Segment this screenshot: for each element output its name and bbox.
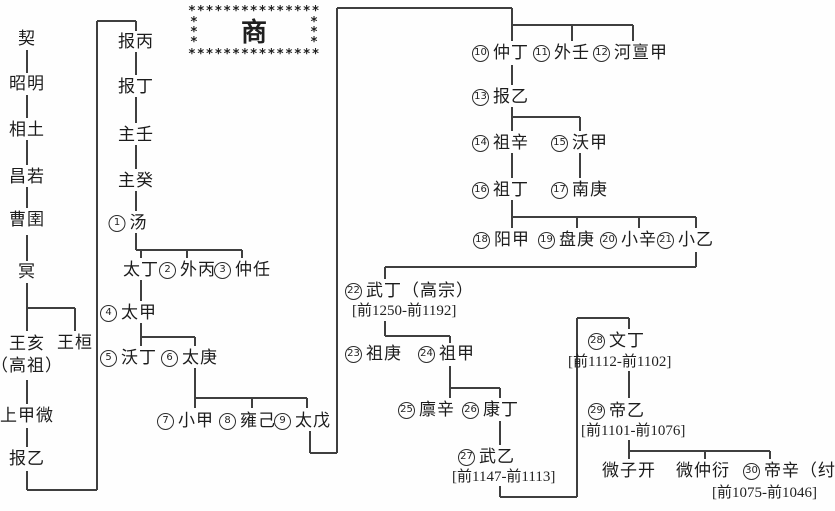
king-14-number-circle: 14 [472, 135, 489, 152]
king-16-number-circle: 16 [472, 182, 489, 199]
king-27-dates: [前1147-前1113] [452, 469, 555, 485]
king-13-number-circle: 13 [472, 89, 489, 106]
title-frame-bottom: *************** [188, 49, 320, 60]
king-15-wojia: 15沃甲 [551, 133, 608, 153]
king-8-number-circle: 8 [219, 413, 236, 430]
king-17-nangeng: 17南庚 [551, 180, 608, 200]
king-21-xiaoyi: 21小乙 [657, 230, 714, 250]
king-20-number-circle: 20 [600, 232, 617, 249]
ancestor-ming: 冥 [18, 262, 36, 282]
king-29-dates: [前1101-前1076] [581, 423, 685, 439]
king-10-number-circle: 10 [472, 45, 489, 62]
ancestor-baoyi: 报乙 [9, 449, 45, 469]
king-19-number-circle: 19 [538, 232, 555, 249]
king-7-xiaojia: 7小甲 [157, 411, 214, 431]
king-18-yangjia: 18阳甲 [473, 230, 530, 250]
king-30-number-circle: 30 [743, 463, 760, 480]
king-3-zhongren: 3仲任 [214, 260, 271, 280]
shang-genealogy-diagram: *************** * * * 商 * * * **********… [0, 0, 835, 511]
dynasty-title-box: *************** * * * 商 * * * **********… [188, 6, 320, 60]
king-12-hedanjia: 12河亶甲 [593, 43, 668, 63]
king-22-dates: [前1250-前1192] [352, 303, 456, 319]
king-4-number-circle: 4 [100, 305, 117, 322]
king-11-wairen: 11外壬 [533, 43, 590, 63]
king-7-number-circle: 7 [157, 413, 174, 430]
king-16-zuding: 16祖丁 [472, 180, 529, 200]
ancestor-wanghai: 王亥 （高祖） [0, 333, 63, 377]
king-26-number-circle: 26 [462, 402, 479, 419]
king-9-taiwu: 9太戊 [274, 411, 331, 431]
king-10-zhongding: 10仲丁 [472, 43, 529, 63]
ancestor-zhaoming: 昭明 [9, 74, 45, 94]
king-28-dates: [前1112-前1102] [568, 354, 671, 370]
king-13-baoyi: 13报乙 [472, 87, 529, 107]
king-28-number-circle: 28 [588, 333, 605, 350]
prince-weizikai: 微子开 [602, 461, 656, 481]
king-8-yongji: 8雍己 [219, 411, 276, 431]
king-1-number-circle: 1 [109, 215, 126, 232]
ancestor-wanghuan: 王桓 [57, 333, 93, 353]
king-26-kangding: 26康丁 [462, 400, 519, 420]
king-24-zujia: 24祖甲 [418, 344, 475, 364]
king-9-number-circle: 9 [274, 413, 291, 430]
king-11-number-circle: 11 [533, 45, 550, 62]
king-28-wending: 28文丁 [588, 331, 645, 351]
prince-taiding: 太丁 [123, 260, 159, 280]
king-14-zuxin: 14祖辛 [472, 133, 529, 153]
king-5-woding: 5沃丁 [100, 348, 157, 368]
king-3-number-circle: 3 [214, 262, 231, 279]
prince-weizhongyan: 微仲衍 [676, 461, 730, 481]
king-27-number-circle: 27 [458, 449, 475, 466]
king-25-number-circle: 25 [398, 402, 415, 419]
dynasty-title: 商 [241, 19, 267, 47]
king-2-number-circle: 2 [159, 262, 176, 279]
ancestor-caoyu: 曹圉 [9, 210, 45, 230]
king-5-number-circle: 5 [100, 350, 117, 367]
king-19-pangeng: 19盘庚 [538, 230, 595, 250]
ancestor-changruo: 昌若 [9, 167, 45, 187]
title-frame-left: * * * [190, 18, 198, 48]
king-20-xiaoxin: 20小辛 [600, 230, 657, 250]
king-22-wuding: 22武丁（高宗） [345, 281, 474, 301]
king-6-taigeng: 6太庚 [161, 348, 218, 368]
ancestor-shangjiawei: 上甲微 [0, 406, 54, 426]
king-25-linxin: 25廪辛 [398, 400, 455, 420]
king-18-number-circle: 18 [473, 232, 490, 249]
king-24-number-circle: 24 [418, 346, 435, 363]
king-22-number-circle: 22 [345, 283, 362, 300]
ancestor-qi: 契 [18, 29, 36, 49]
king-27-wuyi: 27武乙 [458, 447, 515, 467]
ancestor-xiangtu: 相土 [9, 120, 45, 140]
ancestor-baoding: 报丁 [118, 77, 154, 97]
king-23-number-circle: 23 [345, 346, 362, 363]
king-4-taijia: 4太甲 [100, 303, 157, 323]
king-30-dixin: 30帝辛（纣） [743, 461, 835, 481]
ancestor-zhugui: 主癸 [118, 171, 154, 191]
king-23-zugeng: 23祖庚 [345, 344, 402, 364]
title-frame-right: * * * [310, 18, 318, 48]
king-21-number-circle: 21 [657, 232, 674, 249]
king-15-number-circle: 15 [551, 135, 568, 152]
king-17-number-circle: 17 [551, 182, 568, 199]
king-1-tang: 1汤 [109, 213, 148, 233]
king-29-number-circle: 29 [588, 403, 605, 420]
king-2-waibing: 2外丙 [159, 260, 216, 280]
ancestor-baobing: 报丙 [118, 32, 154, 52]
king-12-number-circle: 12 [593, 45, 610, 62]
king-29-diyi: 29帝乙 [588, 401, 645, 421]
king-6-number-circle: 6 [161, 350, 178, 367]
king-30-dates: [前1075-前1046] [712, 485, 817, 501]
title-frame-top: *************** [188, 6, 320, 17]
ancestor-zhuren: 主壬 [118, 125, 154, 145]
